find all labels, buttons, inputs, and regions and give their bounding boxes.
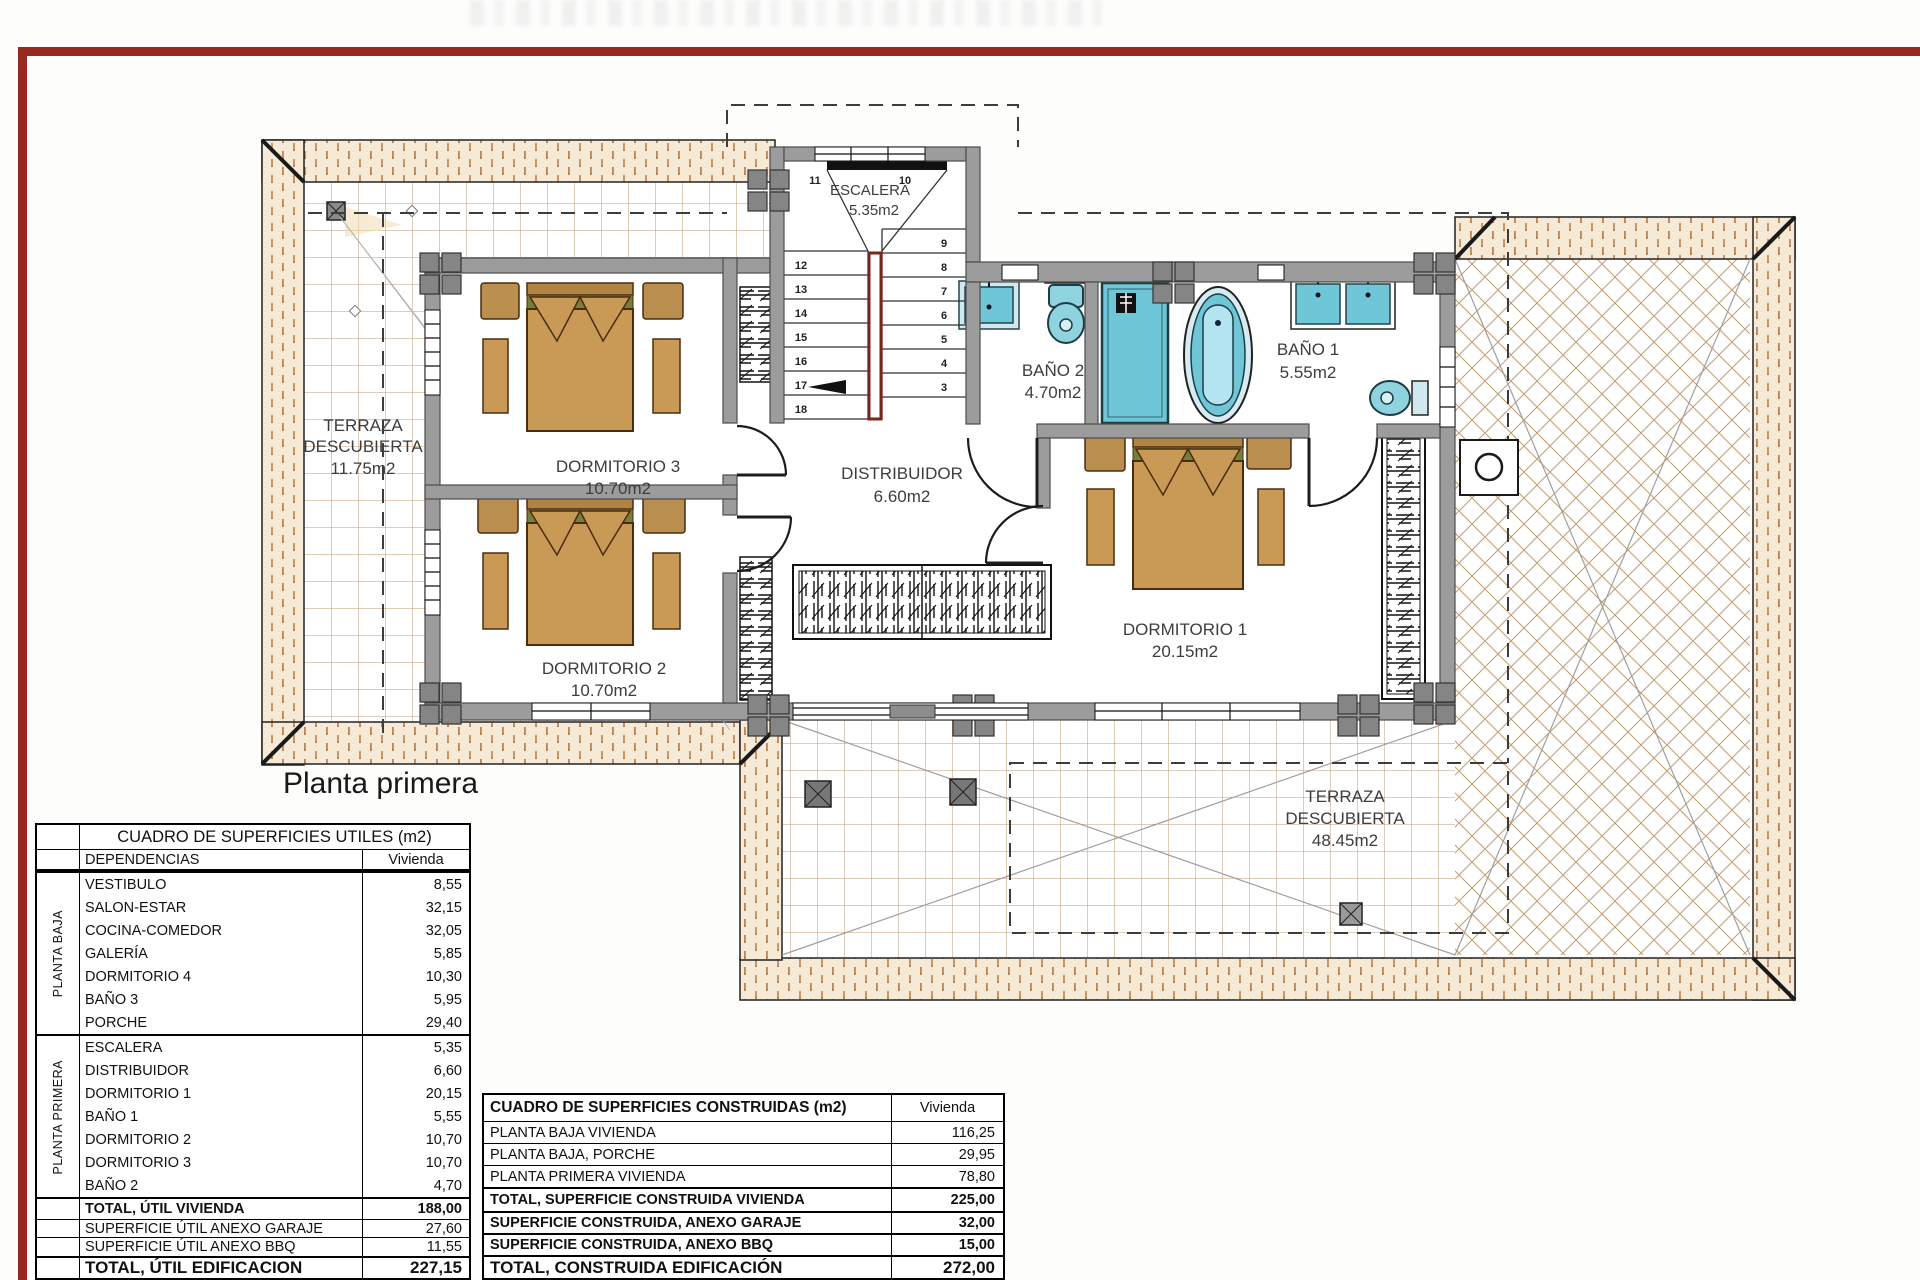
svg-text:15: 15 [795,332,807,344]
total-row-construida-bbq: SUPERFICIE CONSTRUIDA, ANEXO BBQ15,00 [484,1233,1003,1255]
table-row: DORMITORIO 310,70 [80,1151,469,1174]
group-label: PLANTA PRIMERA [51,1060,65,1174]
table-title-row: CUADRO DE SUPERFICIES UTILES (m2) [37,825,469,850]
table-header-row: CUADRO DE SUPERFICIES CONSTRUIDAS (m2) V… [484,1095,1003,1121]
svg-text:17: 17 [795,380,807,392]
svg-text:9: 9 [941,238,947,250]
room-label-bano-2: BAÑO 2 [1022,361,1084,380]
table-row: BAÑO 35,95 [80,988,469,1011]
page-border-left [18,47,27,1280]
room-area-escalera: 5.35m2 [849,202,899,219]
total-row-anexo-bbq: SUPERFICIE ÚTIL ANEXO BBQ11,55 [37,1237,469,1256]
table-row: DORMITORIO 410,30 [80,965,469,988]
table-row: COCINA-COMEDOR32,05 [80,919,469,942]
total-row-util-vivienda: TOTAL, ÚTIL VIVIENDA188,00 [37,1197,469,1218]
page-title: Planta primera [283,767,483,801]
svg-text:10: 10 [899,175,911,187]
room-area-bano-2: 4.70m2 [1025,383,1082,402]
svg-text:16: 16 [795,356,807,368]
svg-text:4: 4 [941,358,948,370]
bano1-double-sink [1291,277,1395,329]
table-row: SALON-ESTAR32,15 [80,896,469,919]
table-row: PORCHE29,40 [80,1011,469,1034]
table-header-row: DEPENDENCIAS Vivienda [37,850,469,871]
svg-text:18: 18 [795,404,807,416]
svg-text:12: 12 [795,260,807,272]
room-label-terraza-bottom-1: TERRAZA [1305,787,1385,806]
room-area-dormitorio-2: 10.70m2 [571,681,637,700]
svg-text:11: 11 [809,175,821,187]
total-row-construida-garaje: SUPERFICIE CONSTRUIDA, ANEXO GARAJE32,00 [484,1211,1003,1233]
total-row-construida-vivienda: TOTAL, SUPERFICIE CONSTRUIDA VIVIENDA225… [484,1187,1003,1211]
table-title: CUADRO DE SUPERFICIES CONSTRUIDAS (m2) [484,1099,891,1117]
chimney [1460,440,1518,495]
total-row-anexo-garaje: SUPERFICIE ÚTIL ANEXO GARAJE27,60 [37,1219,469,1238]
room-label-bano-1: BAÑO 1 [1277,340,1339,359]
group-planta-baja: PLANTA BAJA VESTIBULO8,55 SALON-ESTAR32,… [37,871,469,1034]
bano1-toilet [1370,381,1428,415]
room-label-terraza-left-1: TERRAZA [323,416,403,435]
svg-text:6: 6 [941,310,947,322]
useful-areas-table: CUADRO DE SUPERFICIES UTILES (m2) DEPEND… [35,823,471,1280]
room-area-dormitorio-1: 20.15m2 [1152,642,1218,661]
table-row: PLANTA BAJA VIVIENDA116,25 [484,1121,1003,1143]
group-label: PLANTA BAJA [51,910,65,997]
table-title: CUADRO DE SUPERFICIES UTILES (m2) [80,825,469,850]
room-label-dormitorio-2: DORMITORIO 2 [542,659,666,678]
svg-text:7: 7 [941,286,947,298]
total-row-util-edificacion: TOTAL, ÚTIL EDIFICACION227,15 [37,1256,469,1278]
svg-text:5: 5 [941,334,947,346]
floor-plan: ESCALERA 5.35m2 TERRAZA DESCUBIERTA 11.7… [250,95,1810,1015]
room-area-terraza-left: 11.75m2 [331,459,396,478]
table-row: DISTRIBUIDOR6,60 [80,1059,469,1082]
table-row: PLANTA PRIMERA VIVIENDA78,80 [484,1165,1003,1187]
bathtub [1184,287,1252,423]
room-area-distribuidor: 6.60m2 [874,487,931,506]
table-row: GALERÍA5,85 [80,942,469,965]
table-row: BAÑO 24,70 [80,1174,469,1197]
column-header-vivienda: Vivienda [891,1095,1003,1121]
total-row-construida-edificacion: TOTAL, CONSTRUIDA EDIFICACIÓN272,00 [484,1255,1003,1278]
svg-text:8: 8 [941,262,947,274]
room-label-terraza-bottom-2: DESCUBIERTA [1285,809,1405,828]
table-row: VESTIBULO8,55 [80,873,469,896]
room-area-bano-1: 5.55m2 [1280,363,1337,382]
group-planta-primera: PLANTA PRIMERA ESCALERA5,35 DISTRIBUIDOR… [37,1034,469,1197]
column-header-dependencias: DEPENDENCIAS [80,852,362,868]
svg-text:13: 13 [795,284,807,296]
column-header-vivienda: Vivienda [362,850,469,869]
page-border-top [18,47,1920,56]
svg-text:14: 14 [795,308,808,320]
room-area-terraza-bottom: 48.45m2 [1312,831,1378,850]
shower [1102,283,1168,423]
room-area-dormitorio-3: 10.70m2 [585,479,651,498]
built-areas-table: CUADRO DE SUPERFICIES CONSTRUIDAS (m2) V… [482,1093,1005,1280]
table-row: DORMITORIO 120,15 [80,1082,469,1105]
table-row: ESCALERA5,35 [80,1036,469,1059]
room-label-distribuidor: DISTRIBUIDOR [841,464,963,483]
watermark [470,0,1110,26]
table-row: BAÑO 15,55 [80,1105,469,1128]
table-row: DORMITORIO 210,70 [80,1128,469,1151]
svg-text:3: 3 [941,382,947,394]
room-label-terraza-left-2: DESCUBIERTA [303,437,423,456]
table-row: PLANTA BAJA, PORCHE29,95 [484,1143,1003,1165]
room-label-dormitorio-1: DORMITORIO 1 [1123,620,1247,639]
room-label-dormitorio-3: DORMITORIO 3 [556,457,680,476]
